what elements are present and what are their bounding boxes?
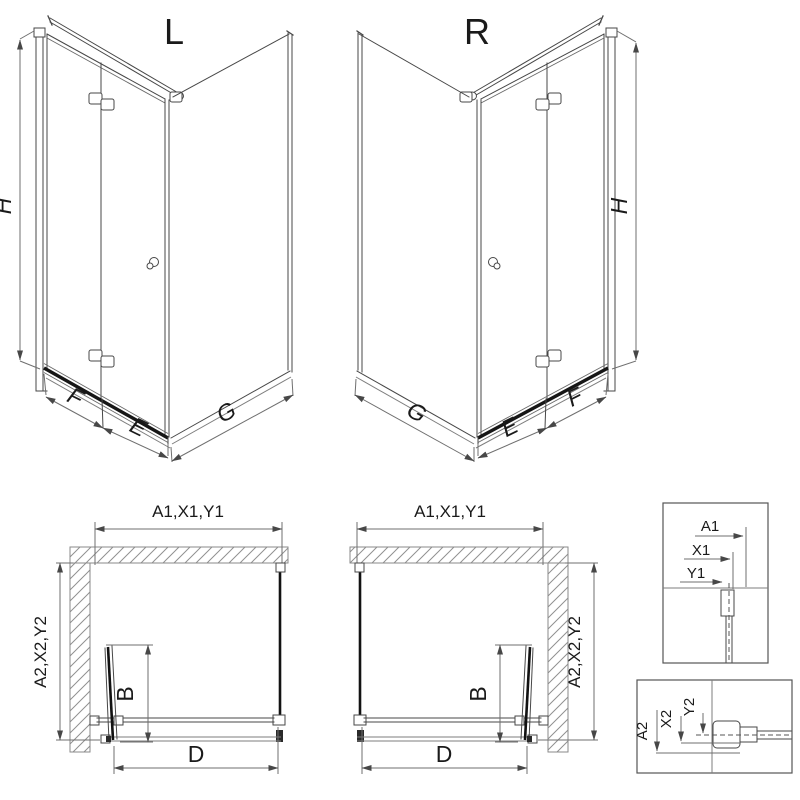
wall-top: [70, 547, 288, 563]
side-panel-right: [356, 31, 475, 444]
folded-door-plan-right: [521, 646, 533, 742]
view-right-title: R: [464, 11, 490, 52]
front-rail-right: [357, 716, 548, 743]
detail-a1-label: A1: [701, 518, 719, 535]
dim-d-label-right: D: [436, 741, 453, 767]
technical-drawing-sheet: L: [0, 0, 800, 800]
shower-enclosure-drawing: L: [0, 0, 800, 800]
dim-a2x2y2-label-left: A2,X2,Y2: [31, 616, 50, 688]
plan-view-left: A1,X1,Y1 A2,X2,Y2: [31, 502, 288, 774]
dim-a1x1y1-label-right: A1,X1,Y1: [414, 502, 486, 521]
dim-f-label-right: F: [562, 381, 588, 411]
detail-y2-label: Y2: [681, 698, 698, 716]
side-panel: [170, 31, 293, 444]
dim-h-label-right: H: [606, 197, 632, 214]
dim-opening-left: D: [114, 727, 278, 774]
plan-view-right: A1,X1,Y1 A2,X2,Y2: [350, 502, 598, 774]
detail-x1-label: X1: [692, 542, 710, 559]
dim-opening-right: D: [362, 727, 527, 774]
wall-left: [70, 563, 90, 752]
dim-a1x1y1-label-left: A1,X1,Y1: [152, 502, 224, 521]
detail-x2-label: X2: [658, 710, 675, 728]
bifold-door: [44, 34, 170, 449]
detail-depth-measurement: A2 X2 Y2: [634, 680, 792, 773]
wall-top-right: [350, 547, 568, 563]
dim-h-label-left: H: [0, 197, 16, 214]
dim-f-label-left: F: [63, 382, 89, 412]
dim-d-label-left: D: [188, 741, 205, 767]
perspective-view-right: R: [355, 11, 636, 462]
bifold-door-right: [476, 34, 608, 449]
dim-a2x2y2-label-right: A2,X2,Y2: [565, 616, 584, 688]
detail-y1-label: Y1: [687, 565, 705, 582]
perspective-view-left: L: [0, 11, 293, 462]
wall-profile-left: [34, 28, 47, 391]
dim-height-left: H: [0, 31, 40, 369]
dim-height-right: H: [606, 31, 636, 369]
detail-width-measurement: A1 X1 Y1: [663, 503, 768, 663]
front-rail-left: [90, 716, 281, 743]
detail-a2-label: A2: [634, 722, 651, 740]
view-left-title: L: [164, 11, 184, 52]
dim-b-label-left: B: [112, 686, 138, 701]
dim-b-label-right: B: [465, 686, 491, 701]
dim-g-label-right: G: [403, 396, 431, 427]
